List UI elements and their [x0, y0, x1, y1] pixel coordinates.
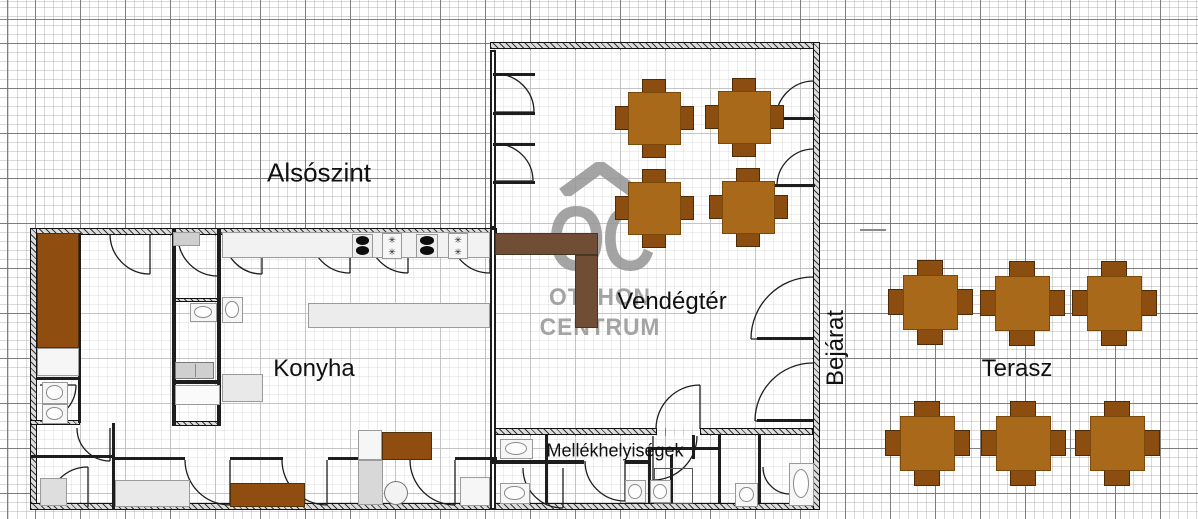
appliance-divider [195, 364, 196, 377]
stove-fixture [416, 234, 438, 258]
stove-burner-icon [356, 246, 369, 255]
wood-furniture [230, 483, 305, 507]
counter [173, 232, 200, 246]
door-arc [755, 363, 813, 421]
door-arc [77, 428, 110, 461]
terrace-table [995, 276, 1050, 331]
toilet-bowl-icon [793, 469, 810, 499]
toilet-fixture [42, 382, 68, 404]
label-terasz: Terasz [982, 355, 1053, 383]
counter [115, 480, 190, 507]
door-arc [496, 144, 533, 181]
toilet-fixture [42, 404, 68, 424]
toilet-fixture [789, 463, 814, 506]
toilet-bowl-icon [739, 487, 754, 503]
counter [175, 385, 220, 405]
sink-fixture [650, 480, 671, 503]
bar-counter [575, 255, 598, 328]
counter [460, 477, 490, 506]
stove-burner-icon [420, 246, 434, 255]
stove-burner-icon [356, 236, 369, 245]
terrace-table [903, 275, 958, 330]
gas-burner-fixture: ✳ ✳ [382, 233, 402, 259]
toilet-bowl-icon [505, 442, 527, 455]
counter [358, 460, 383, 505]
label-bejarat: Bejárat [822, 310, 850, 386]
label-konyha: Konyha [273, 355, 354, 383]
toilet-bowl-icon [46, 385, 63, 399]
toilet-fixture [500, 439, 533, 459]
dining-table [718, 91, 771, 144]
toilet-bowl-icon [46, 407, 63, 420]
dining-table [722, 181, 775, 234]
counter [308, 303, 490, 328]
stove-fixture [352, 234, 373, 258]
door-arc [656, 385, 700, 429]
dining-table [628, 182, 681, 235]
sink-bowl-icon [653, 484, 667, 499]
sink-fixture [625, 480, 646, 503]
floorplan-canvas: OC OTTHON CENTRUM ✳ ✳✳ ✳AlsószintVendégt… [0, 0, 1198, 519]
round-fixture [384, 481, 408, 505]
bar-counter [495, 233, 598, 255]
door-arc [110, 234, 150, 274]
gas-burner-fixture: ✳ ✳ [448, 233, 468, 259]
toilet-fixture [735, 483, 758, 507]
sink-bowl-icon [628, 484, 642, 499]
label-mellekhelyisegek: Mellékhelyiségek [546, 441, 683, 462]
sink-bowl-icon [225, 301, 239, 318]
terrace-table [1090, 416, 1145, 471]
terrace-table [996, 416, 1051, 471]
stove-burner-icon [420, 236, 434, 245]
door-arc [585, 461, 625, 501]
gas-burner-icon: ✳ ✳ [383, 234, 401, 258]
door-arc [751, 277, 813, 339]
door-arc [410, 460, 455, 505]
toilet-fixture [500, 483, 530, 504]
counter [222, 374, 263, 402]
door-arc [496, 74, 534, 112]
toilet-fixture [190, 303, 217, 322]
label-vendegter: Vendégtér [617, 288, 726, 316]
door-arc [777, 149, 814, 186]
gas-burner-icon: ✳ ✳ [449, 234, 467, 258]
dining-table [628, 92, 681, 145]
door-arc [185, 460, 230, 505]
terrace-table [1087, 276, 1142, 331]
sink-fixture [222, 297, 243, 323]
label-alsoszint: Alsószint [267, 158, 371, 189]
terrace-table [900, 416, 955, 471]
door-arc [763, 467, 790, 494]
counter [358, 430, 382, 460]
appliance [175, 362, 214, 379]
toilet-bowl-icon [504, 486, 524, 500]
toilet-bowl-icon [194, 306, 212, 318]
counter [40, 478, 67, 506]
wood-furniture [37, 233, 79, 348]
counter [37, 348, 79, 376]
wood-furniture [382, 432, 432, 460]
